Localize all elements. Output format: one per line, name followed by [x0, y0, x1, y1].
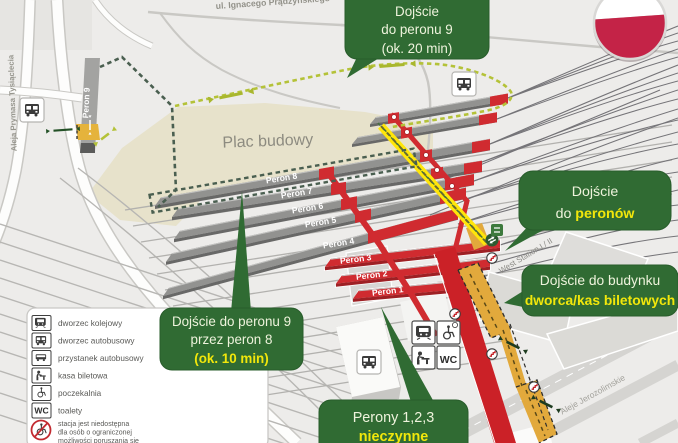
svg-text:możliwości poruszania się: możliwości poruszania się	[58, 438, 139, 443]
svg-text:dla osób o ograniczonej: dla osób o ograniczonej	[58, 430, 132, 437]
svg-text:WC: WC	[34, 406, 48, 416]
svg-text:Dojście: Dojście	[395, 4, 439, 19]
svg-text:przystanek autobusowy: przystanek autobusowy	[58, 354, 144, 363]
svg-text:Plac budowy: Plac budowy	[222, 131, 313, 151]
svg-text:Peron 9: Peron 9	[80, 87, 92, 119]
svg-text:dworca/kas biletowych: dworca/kas biletowych	[525, 293, 675, 308]
svg-text:dworzec kolejowy: dworzec kolejowy	[58, 319, 123, 328]
svg-text:przez peron 8: przez peron 8	[191, 332, 273, 347]
svg-text:poczekalnia: poczekalnia	[58, 389, 102, 398]
svg-text:stacja jest niedostępna: stacja jest niedostępna	[58, 421, 129, 428]
svg-text:toalety: toalety	[58, 406, 83, 415]
svg-text:do peronu 9: do peronu 9	[381, 22, 452, 37]
svg-text:(ok. 20 min): (ok. 20 min)	[382, 41, 453, 56]
svg-text:do peronów: do peronów	[556, 206, 636, 222]
svg-text:Dojście do budynku: Dojście do budynku	[540, 273, 660, 288]
svg-text:Dojście do peronu 9: Dojście do peronu 9	[172, 314, 291, 329]
svg-text:Dojście: Dojście	[572, 184, 619, 200]
svg-text:WC: WC	[440, 354, 458, 366]
svg-text:dworzec autobusowy: dworzec autobusowy	[58, 336, 135, 345]
svg-text:Perony 1,2,3: Perony 1,2,3	[353, 410, 435, 426]
svg-text:kasa biletowa: kasa biletowa	[58, 371, 108, 380]
svg-text:nieczynne: nieczynne	[359, 429, 429, 443]
svg-text:(ok. 10 min): (ok. 10 min)	[194, 351, 268, 366]
